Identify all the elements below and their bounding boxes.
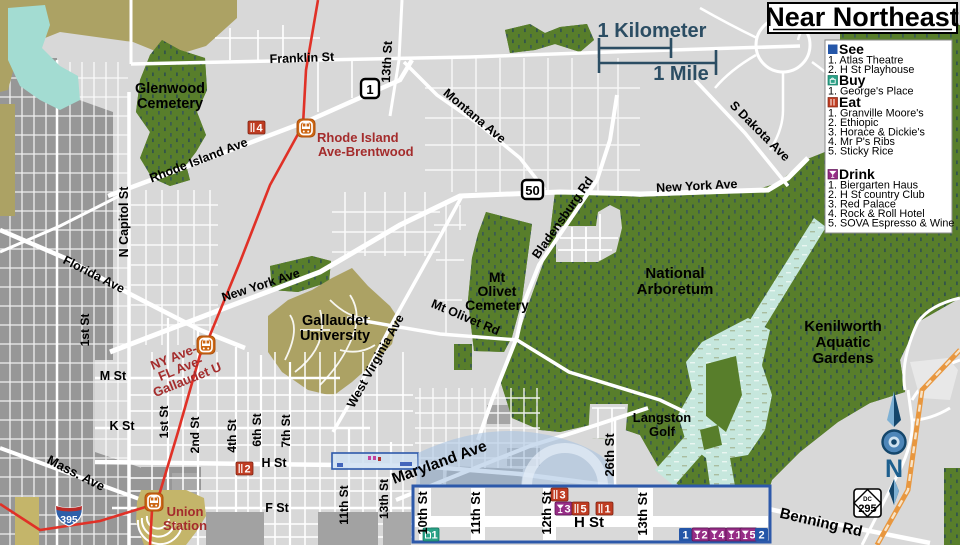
svg-text:Cemetery: Cemetery xyxy=(137,96,203,112)
svg-text:1: 1 xyxy=(682,530,688,542)
svg-text:13th St: 13th St xyxy=(377,479,391,519)
svg-text:National: National xyxy=(645,265,704,282)
svg-text:2: 2 xyxy=(244,464,250,476)
svg-text:Station: Station xyxy=(163,518,207,533)
svg-text:1: 1 xyxy=(366,82,373,97)
svg-text:F St: F St xyxy=(265,501,289,515)
svg-text:50: 50 xyxy=(525,183,539,198)
svg-text:2nd St: 2nd St xyxy=(188,417,202,454)
svg-text:11th St: 11th St xyxy=(337,485,351,524)
svg-text:2: 2 xyxy=(758,530,764,542)
svg-text:5. SOVA Espresso & Wine: 5. SOVA Espresso & Wine xyxy=(828,218,954,230)
svg-text:Franklin St: Franklin St xyxy=(269,50,335,66)
svg-text:6th St: 6th St xyxy=(250,413,264,446)
svg-text:13th St: 13th St xyxy=(379,40,395,83)
svg-text:1 Kilometer: 1 Kilometer xyxy=(598,20,707,42)
svg-text:University: University xyxy=(300,328,370,344)
svg-text:2: 2 xyxy=(701,530,707,542)
svg-text:Ave-Brentwood: Ave-Brentwood xyxy=(318,144,414,159)
svg-text:13th St: 13th St xyxy=(635,492,650,536)
svg-text:1: 1 xyxy=(431,530,437,542)
svg-text:M St: M St xyxy=(100,369,127,383)
svg-text:Golf: Golf xyxy=(649,424,676,439)
svg-text:1 Mile: 1 Mile xyxy=(653,63,709,85)
svg-text:N Capitol St: N Capitol St xyxy=(117,186,131,258)
svg-text:Aquatic: Aquatic xyxy=(815,334,870,351)
svg-text:4: 4 xyxy=(718,530,725,542)
svg-text:Union: Union xyxy=(167,504,204,519)
svg-text:3: 3 xyxy=(559,490,565,502)
svg-text:5. Sticky Rice: 5. Sticky Rice xyxy=(828,146,893,158)
svg-text:N: N xyxy=(885,455,903,483)
svg-text:295: 295 xyxy=(858,503,876,515)
svg-text:Gallaudet: Gallaudet xyxy=(302,313,368,329)
svg-text:12th St: 12th St xyxy=(539,491,554,535)
svg-text:395: 395 xyxy=(60,514,78,526)
svg-text:Langston: Langston xyxy=(633,410,692,425)
svg-text:1st St: 1st St xyxy=(78,314,92,347)
svg-text:Glenwood: Glenwood xyxy=(135,81,205,97)
svg-text:Arboretum: Arboretum xyxy=(637,281,714,298)
svg-text:7th St: 7th St xyxy=(279,414,293,447)
svg-text:1st St: 1st St xyxy=(157,406,171,439)
svg-text:K St: K St xyxy=(110,419,136,433)
svg-text:Near Northeast: Near Northeast xyxy=(765,2,959,32)
svg-text:4th St: 4th St xyxy=(225,419,239,452)
svg-text:10th St: 10th St xyxy=(415,491,430,535)
svg-text:26th St: 26th St xyxy=(602,433,617,477)
svg-text:11th St: 11th St xyxy=(468,491,483,534)
svg-text:Gardens: Gardens xyxy=(813,350,874,367)
svg-text:Rhode Island: Rhode Island xyxy=(317,130,399,145)
svg-text:Kenilworth: Kenilworth xyxy=(804,318,882,335)
svg-text:H St: H St xyxy=(262,456,288,470)
svg-text:H St: H St xyxy=(574,514,604,531)
svg-text:3: 3 xyxy=(564,504,570,516)
svg-text:Cemetery: Cemetery xyxy=(465,297,529,313)
svg-text:1: 1 xyxy=(604,504,610,516)
svg-text:4: 4 xyxy=(256,123,263,135)
svg-text:5: 5 xyxy=(749,530,755,542)
